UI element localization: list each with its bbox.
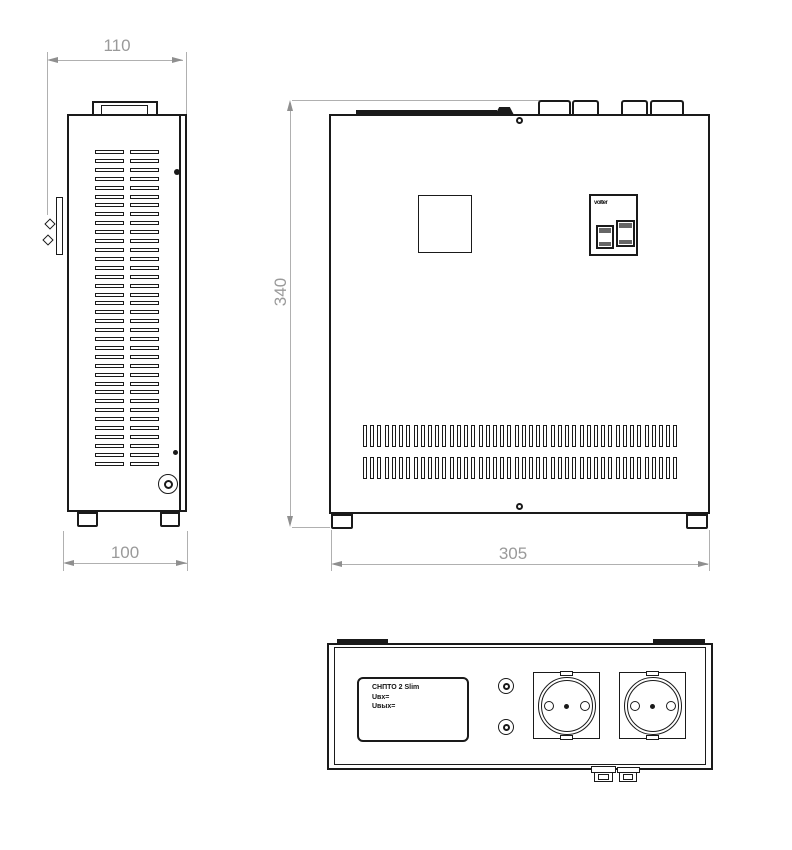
vent-slot xyxy=(130,390,159,394)
vent-slot xyxy=(551,425,555,447)
vent-slot xyxy=(130,382,159,386)
vent-slot xyxy=(95,275,124,279)
vent-slot xyxy=(565,425,569,447)
switch-rocker xyxy=(599,242,611,246)
connector-slot xyxy=(623,774,633,780)
vent-slot xyxy=(130,337,159,341)
vent-slot xyxy=(471,425,475,447)
vent-slot xyxy=(95,186,124,190)
nameplate-uout: Uвых= xyxy=(372,702,463,712)
ext-line-340-bottom xyxy=(292,527,330,528)
vent-slot xyxy=(363,457,367,479)
vent-slot xyxy=(130,203,159,207)
vent-slot xyxy=(637,457,641,479)
vent-slot xyxy=(370,425,374,447)
vent-slot xyxy=(130,435,159,439)
connector-slot xyxy=(598,774,609,780)
socket-hole xyxy=(544,701,554,711)
socket-notch xyxy=(560,735,573,740)
vent-slot xyxy=(479,457,483,479)
vent-slot xyxy=(95,355,124,359)
vent-slot xyxy=(515,457,519,479)
vent-slot xyxy=(95,435,124,439)
vent-slot xyxy=(130,453,159,457)
dim-value-340: 340 xyxy=(271,269,291,315)
switch-rocker xyxy=(619,240,632,244)
vent-slot xyxy=(594,425,598,447)
vent-slot xyxy=(95,399,124,403)
dim-line-100 xyxy=(66,563,187,564)
vent-slot xyxy=(130,248,159,252)
vent-slot xyxy=(95,284,124,288)
vent-slot xyxy=(558,425,562,447)
breaker-switch xyxy=(616,220,635,247)
nameplate: СНПТО 2 Slim Uвх= Uвых= xyxy=(357,677,469,742)
vent-slot xyxy=(623,457,627,479)
vent-slot xyxy=(399,425,403,447)
vent-slot xyxy=(659,425,663,447)
vent-slot xyxy=(95,266,124,270)
vent-slot xyxy=(645,425,649,447)
screw-icon xyxy=(516,503,523,510)
vent-slot xyxy=(95,239,124,243)
cable-grommet-hole xyxy=(164,480,173,489)
vent-slot xyxy=(507,425,511,447)
vent-slot xyxy=(95,346,124,350)
side-vent-column xyxy=(130,150,159,466)
vent-slot xyxy=(130,150,159,154)
vent-slot xyxy=(471,457,475,479)
vent-slot xyxy=(522,457,526,479)
vent-slot xyxy=(130,168,159,172)
vent-slot xyxy=(95,373,124,377)
vent-slot xyxy=(130,319,159,323)
vent-slot xyxy=(95,319,124,323)
vent-slot xyxy=(673,457,677,479)
vent-slot xyxy=(442,425,446,447)
vent-slot xyxy=(130,266,159,270)
vent-slot xyxy=(428,457,432,479)
vent-slot xyxy=(551,457,555,479)
arrowhead-icon xyxy=(63,560,74,566)
vent-slot xyxy=(370,457,374,479)
vent-slot xyxy=(637,425,641,447)
vent-slot xyxy=(95,203,124,207)
side-door-edge-line xyxy=(179,115,181,511)
vent-slot xyxy=(450,457,454,479)
vent-slot xyxy=(130,159,159,163)
vent-slot xyxy=(130,462,159,466)
vent-slot xyxy=(442,457,446,479)
vent-slot xyxy=(601,457,605,479)
side-body xyxy=(67,114,187,512)
vent-slot xyxy=(95,390,124,394)
vent-slot xyxy=(95,195,124,199)
vent-slot xyxy=(406,425,410,447)
vent-slot xyxy=(580,457,584,479)
vent-slot xyxy=(500,425,504,447)
top-edge-strip xyxy=(356,110,497,114)
vent-slot xyxy=(580,425,584,447)
vent-slot xyxy=(130,186,159,190)
vent-slot xyxy=(587,457,591,479)
vent-slot xyxy=(486,425,490,447)
vent-slot xyxy=(457,457,461,479)
vent-slot xyxy=(608,425,612,447)
vent-slot xyxy=(392,457,396,479)
vent-slot xyxy=(130,346,159,350)
vent-slot xyxy=(130,239,159,243)
vent-slot xyxy=(522,425,526,447)
vent-slot xyxy=(558,457,562,479)
vent-slot xyxy=(435,425,439,447)
vent-slot xyxy=(529,457,533,479)
arrowhead-icon xyxy=(287,100,293,111)
vent-slot xyxy=(587,425,591,447)
ext-line-340-top xyxy=(292,100,545,101)
vent-slot xyxy=(363,425,367,447)
display-window xyxy=(418,195,472,253)
vent-slot xyxy=(479,425,483,447)
vent-slot xyxy=(572,457,576,479)
foot xyxy=(160,512,180,527)
vent-slot xyxy=(95,337,124,341)
side-vent-column xyxy=(95,150,124,466)
vent-slot xyxy=(666,425,670,447)
vent-slot xyxy=(95,417,124,421)
switch-rocker xyxy=(599,228,611,233)
top-bump xyxy=(495,107,514,115)
vent-slot xyxy=(95,328,124,332)
indicator-hole xyxy=(503,683,510,690)
vent-slot xyxy=(652,425,656,447)
vent-slot xyxy=(95,301,124,305)
vent-slot xyxy=(507,457,511,479)
vent-slot xyxy=(130,417,159,421)
vent-slot xyxy=(572,425,576,447)
vent-slot xyxy=(95,212,124,216)
arrowhead-icon xyxy=(176,560,187,566)
vent-slot xyxy=(130,328,159,332)
vent-slot xyxy=(130,310,159,314)
socket-hole xyxy=(666,701,676,711)
vent-slot xyxy=(414,425,418,447)
vent-slot xyxy=(630,457,634,479)
vent-slot xyxy=(543,425,547,447)
vent-slot xyxy=(130,177,159,181)
arrowhead-icon xyxy=(47,57,58,63)
arrowhead-icon xyxy=(698,561,709,567)
foot xyxy=(331,514,353,529)
vent-slot xyxy=(377,425,381,447)
foot xyxy=(686,514,708,529)
vent-slot xyxy=(414,457,418,479)
vent-slot xyxy=(435,457,439,479)
ext-line-305-right xyxy=(709,530,710,571)
vent-slot xyxy=(493,457,497,479)
vent-slot xyxy=(645,457,649,479)
vent-slot xyxy=(130,230,159,234)
vent-slot xyxy=(95,364,124,368)
vent-slot xyxy=(95,177,124,181)
vent-slot xyxy=(406,457,410,479)
vent-slot xyxy=(666,457,670,479)
vent-slot xyxy=(630,425,634,447)
socket-pin xyxy=(564,704,569,709)
vent-slot xyxy=(616,457,620,479)
vent-slot xyxy=(623,425,627,447)
socket-notch xyxy=(646,735,659,740)
arrowhead-icon xyxy=(172,57,183,63)
vent-slot xyxy=(130,257,159,261)
dim-value-110: 110 xyxy=(88,36,146,56)
vent-slot xyxy=(130,364,159,368)
vent-slot xyxy=(392,425,396,447)
vent-slot xyxy=(616,425,620,447)
vent-slot xyxy=(130,293,159,297)
vent-slot xyxy=(457,425,461,447)
vent-slot xyxy=(428,425,432,447)
vent-slot xyxy=(130,408,159,412)
vent-slot xyxy=(565,457,569,479)
socket-hole xyxy=(630,701,640,711)
screw-icon xyxy=(173,450,178,455)
vent-slot xyxy=(95,159,124,163)
vent-slot xyxy=(95,221,124,225)
vent-slot xyxy=(601,425,605,447)
vent-slot xyxy=(464,425,468,447)
vent-slot xyxy=(130,399,159,403)
vent-slot xyxy=(130,426,159,430)
screw-icon xyxy=(516,117,523,124)
vent-slot xyxy=(95,310,124,314)
vent-slot xyxy=(464,457,468,479)
vent-slot xyxy=(130,195,159,199)
vent-slot xyxy=(95,382,124,386)
front-vent-row xyxy=(363,457,678,479)
vent-slot xyxy=(95,293,124,297)
front-body xyxy=(329,114,710,514)
indicator-hole xyxy=(503,724,510,731)
vent-slot xyxy=(659,457,663,479)
switch-rocker xyxy=(619,223,632,228)
socket-hole xyxy=(580,701,590,711)
foot xyxy=(77,512,98,527)
vent-slot xyxy=(450,425,454,447)
vent-slot xyxy=(421,457,425,479)
vent-slot xyxy=(385,457,389,479)
vent-slot xyxy=(95,453,124,457)
vent-slot xyxy=(95,444,124,448)
arrowhead-icon xyxy=(287,516,293,527)
vent-slot xyxy=(95,150,124,154)
vent-slot xyxy=(652,457,656,479)
vent-slot xyxy=(500,457,504,479)
vent-slot xyxy=(673,425,677,447)
vent-slot xyxy=(536,425,540,447)
vent-slot xyxy=(543,457,547,479)
vent-slot xyxy=(130,301,159,305)
technical-drawing-canvas: 110 100 xyxy=(0,0,792,850)
wall-bracket xyxy=(56,197,63,255)
vent-slot xyxy=(95,462,124,466)
vent-slot xyxy=(130,284,159,288)
vent-slot xyxy=(421,425,425,447)
vent-slot xyxy=(95,426,124,430)
screw-icon xyxy=(174,169,180,175)
bracket-hook-icon xyxy=(44,218,55,229)
arrowhead-icon xyxy=(331,561,342,567)
ext-line-100-right xyxy=(187,531,188,571)
vent-slot xyxy=(594,457,598,479)
front-vent-row xyxy=(363,425,678,447)
vent-slot xyxy=(385,425,389,447)
breaker-switch xyxy=(596,225,614,249)
dim-line-305 xyxy=(334,564,708,565)
vent-slot xyxy=(130,444,159,448)
vent-slot xyxy=(493,425,497,447)
dim-value-305: 305 xyxy=(483,544,543,564)
vent-slot xyxy=(95,168,124,172)
nameplate-model: СНПТО 2 Slim xyxy=(372,683,463,693)
vent-slot xyxy=(130,373,159,377)
nameplate-uin: Uвх= xyxy=(372,693,463,703)
socket-notch xyxy=(560,671,573,676)
vent-slot xyxy=(608,457,612,479)
vent-slot xyxy=(95,230,124,234)
vent-slot xyxy=(486,457,490,479)
ext-line-110-left xyxy=(47,52,48,215)
socket-pin xyxy=(650,704,655,709)
bracket-hook-icon xyxy=(42,234,53,245)
vent-slot xyxy=(130,212,159,216)
vent-slot xyxy=(95,248,124,252)
vent-slot xyxy=(515,425,519,447)
socket-notch xyxy=(646,671,659,676)
dim-value-100: 100 xyxy=(95,543,155,563)
vent-slot xyxy=(130,221,159,225)
vent-slot xyxy=(130,275,159,279)
breaker-brand-label: volter xyxy=(594,200,620,208)
vent-slot xyxy=(95,257,124,261)
vent-slot xyxy=(529,425,533,447)
vent-slot xyxy=(399,457,403,479)
dim-line-110 xyxy=(50,60,183,61)
vent-slot xyxy=(130,355,159,359)
vent-slot xyxy=(536,457,540,479)
vent-slot xyxy=(95,408,124,412)
vent-slot xyxy=(377,457,381,479)
